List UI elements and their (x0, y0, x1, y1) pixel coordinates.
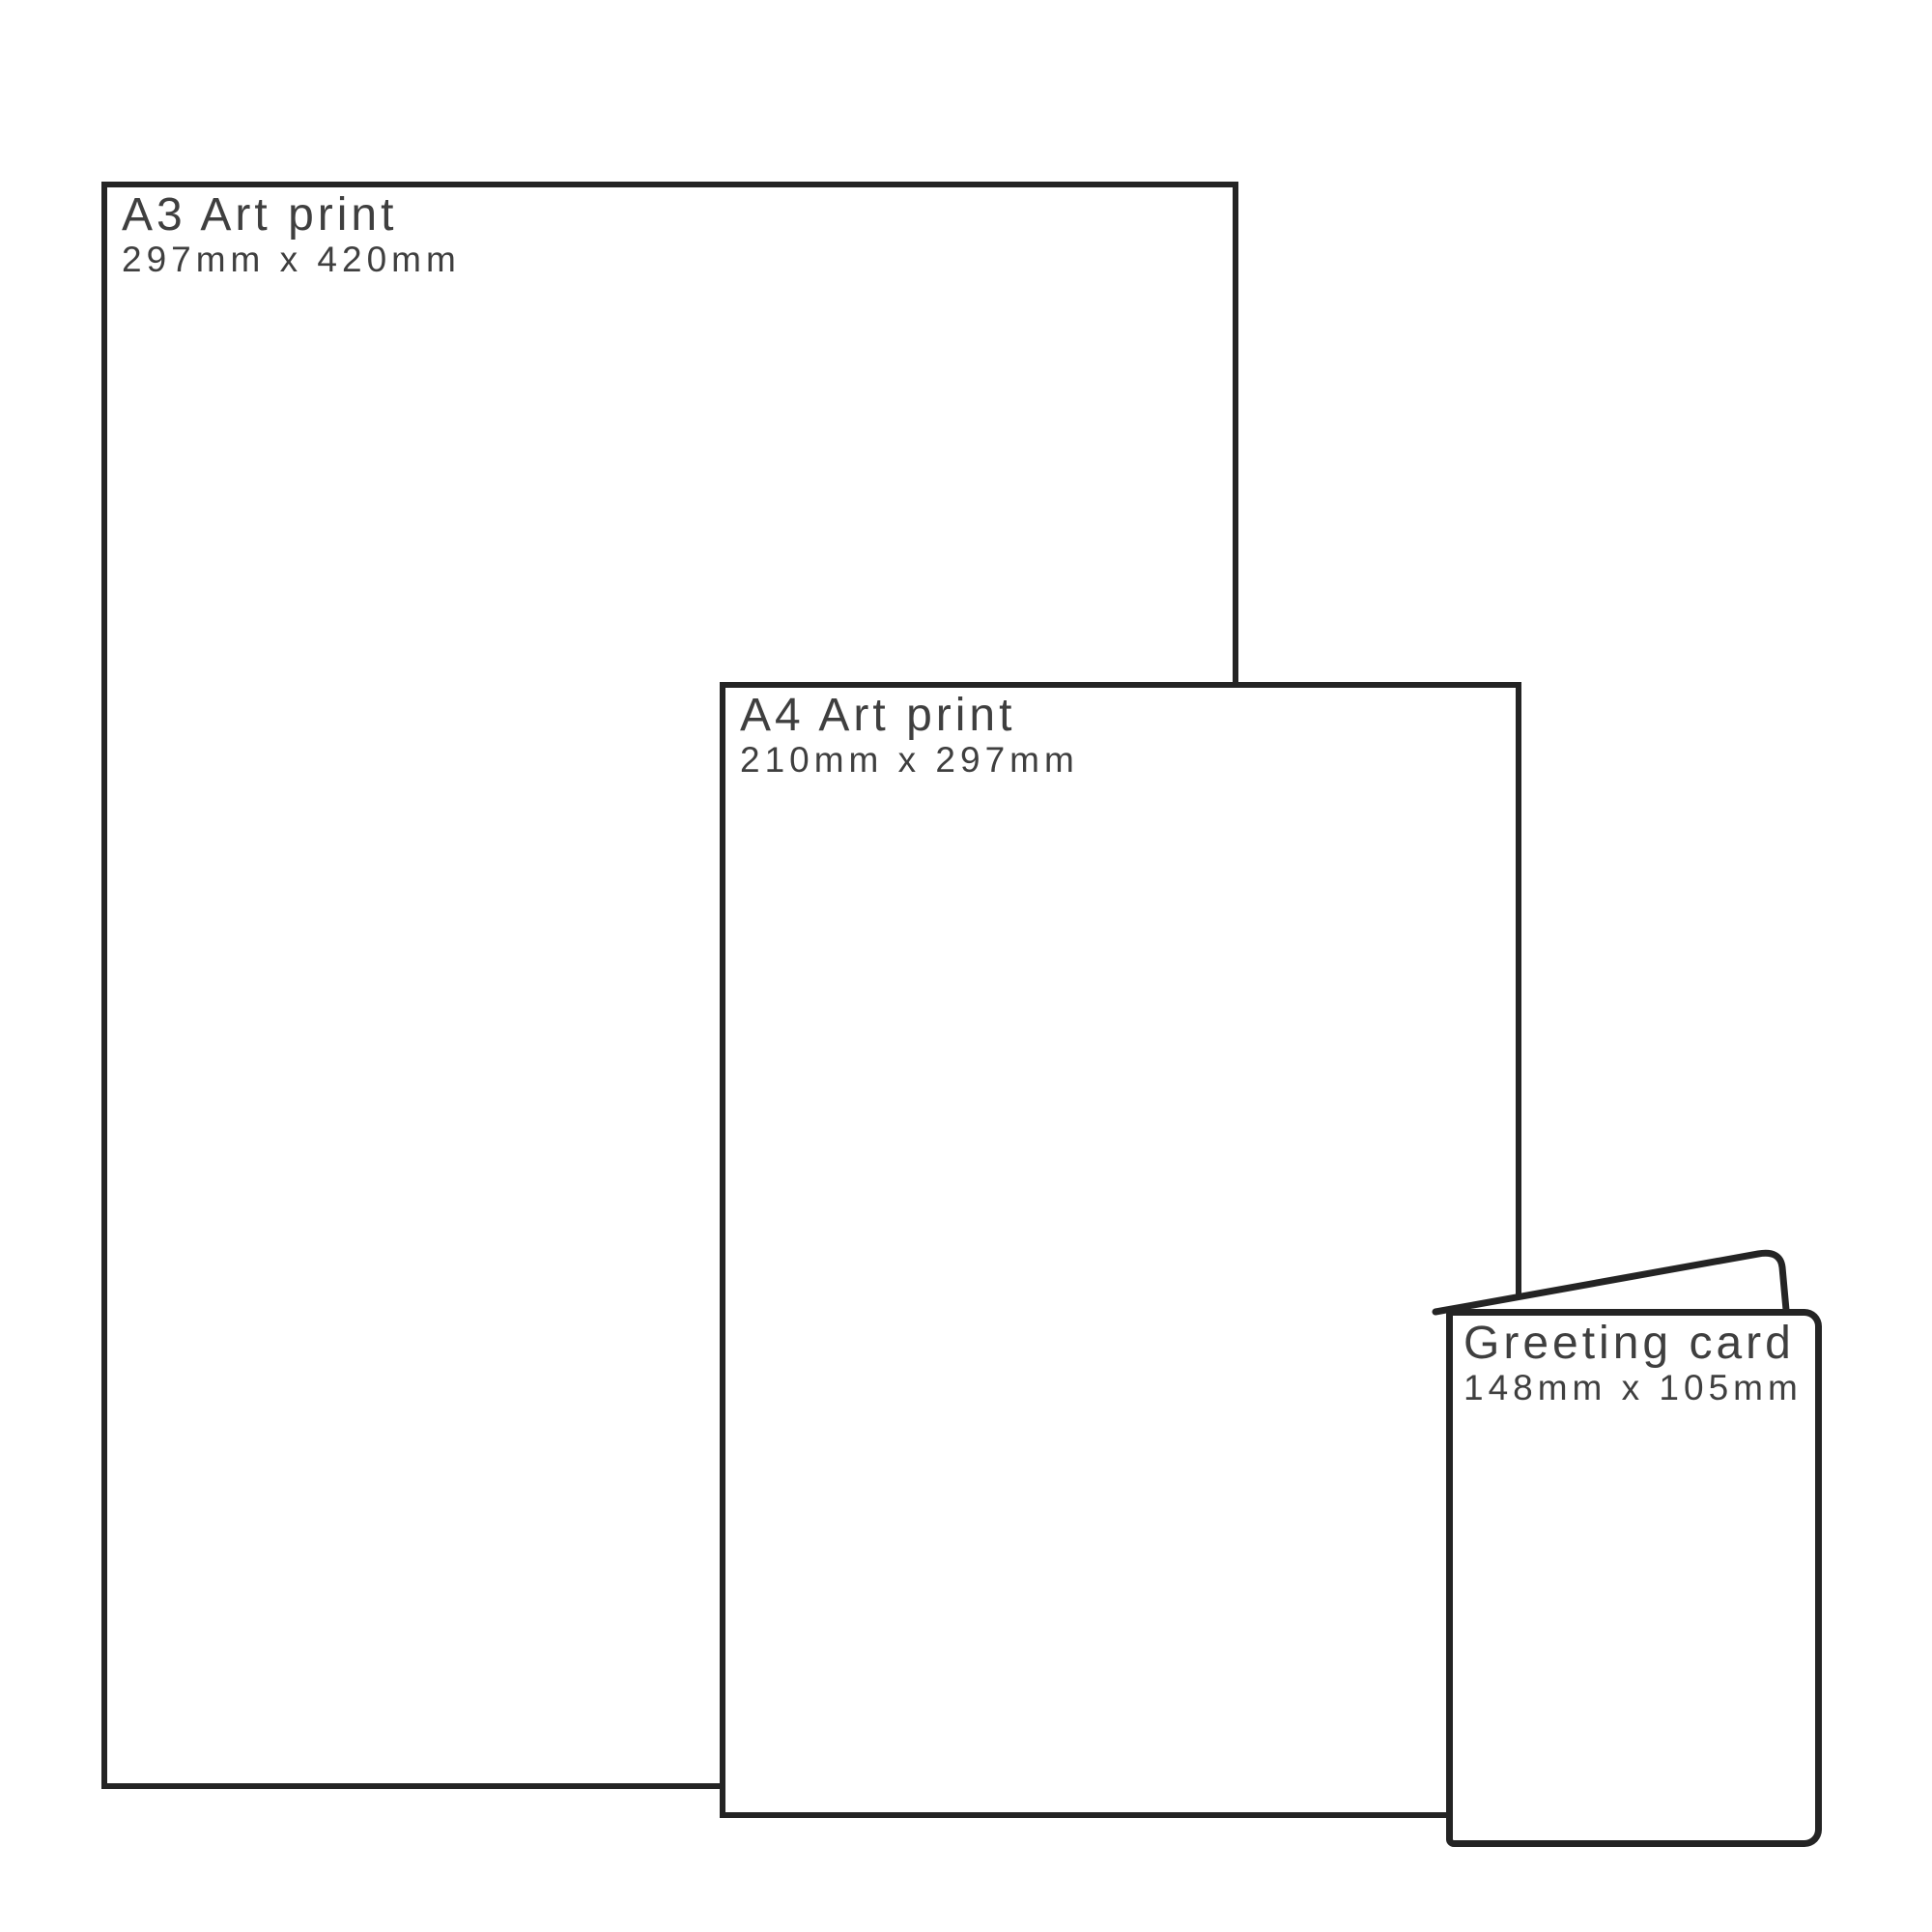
a4-print-title: A4 Art print (740, 692, 1079, 740)
greeting-card-label: Greeting card 148mm x 105mm (1463, 1320, 1803, 1407)
a3-print-label: A3 Art print 297mm x 420mm (122, 191, 461, 279)
print-size-comparison-diagram: A3 Art print 297mm x 420mm A4 Art print … (0, 0, 1932, 1932)
a3-print-title: A3 Art print (122, 191, 461, 240)
greeting-card-title: Greeting card (1463, 1320, 1803, 1368)
greeting-card-dimensions: 148mm x 105mm (1463, 1368, 1803, 1407)
greeting-card-outline: Greeting card 148mm x 105mm (1446, 1309, 1822, 1847)
a4-print-label: A4 Art print 210mm x 297mm (740, 692, 1079, 780)
a4-print-outline: A4 Art print 210mm x 297mm (720, 682, 1521, 1818)
a3-print-dimensions: 297mm x 420mm (122, 240, 461, 279)
a4-print-dimensions: 210mm x 297mm (740, 740, 1079, 780)
